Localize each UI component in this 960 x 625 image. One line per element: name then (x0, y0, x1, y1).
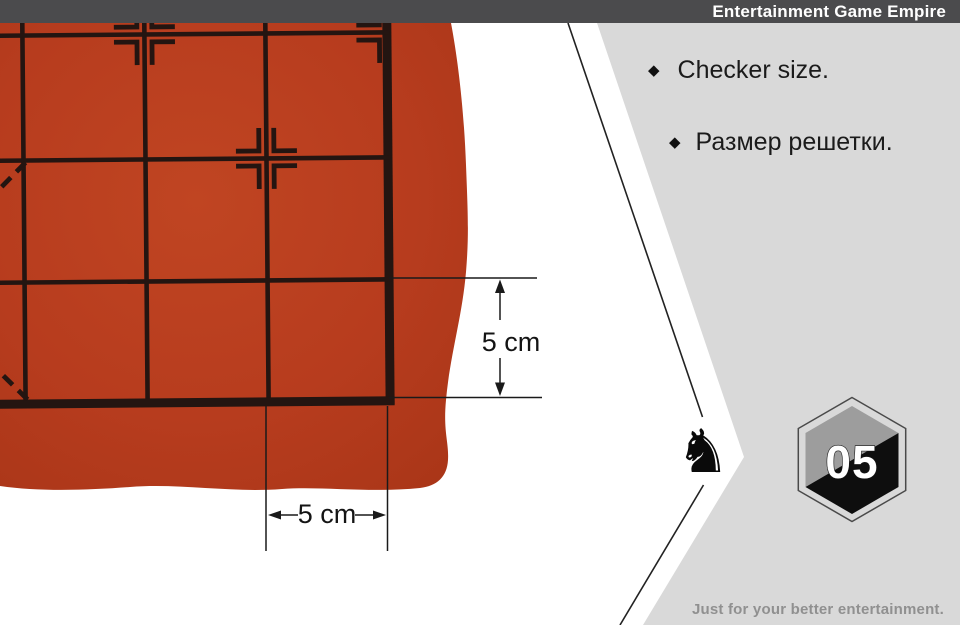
step-badge: 05 (798, 398, 905, 522)
bullet-label-en: Checker size. (678, 57, 829, 83)
step-number: 05 (825, 436, 878, 488)
diamond-bullet-icon: ◆ (669, 135, 681, 150)
bullet-label-ru: Размер решетки. (696, 129, 893, 155)
chevron-accent-line (568, 23, 704, 625)
bullet-row-en: ◆ Checker size. (648, 57, 829, 83)
diamond-bullet-icon: ◆ (648, 63, 660, 78)
diagram-graphics: 05 (0, 0, 960, 625)
bullet-row-ru: ◆ Размер решетки. (669, 129, 893, 155)
cell-width-label: 5 cm (293, 499, 361, 530)
top-banner: Entertainment Game Empire (0, 0, 960, 23)
product-infographic: 05 Entertainment Game Empire ◆ Checker s… (0, 0, 960, 625)
footer-slogan: Just for your better entertainment. (692, 601, 944, 618)
banner-title: Entertainment Game Empire (712, 0, 946, 23)
mat-fabric (0, 23, 468, 490)
cell-height-label: 5 cm (477, 327, 545, 358)
knight-icon: ♞ (664, 419, 742, 485)
